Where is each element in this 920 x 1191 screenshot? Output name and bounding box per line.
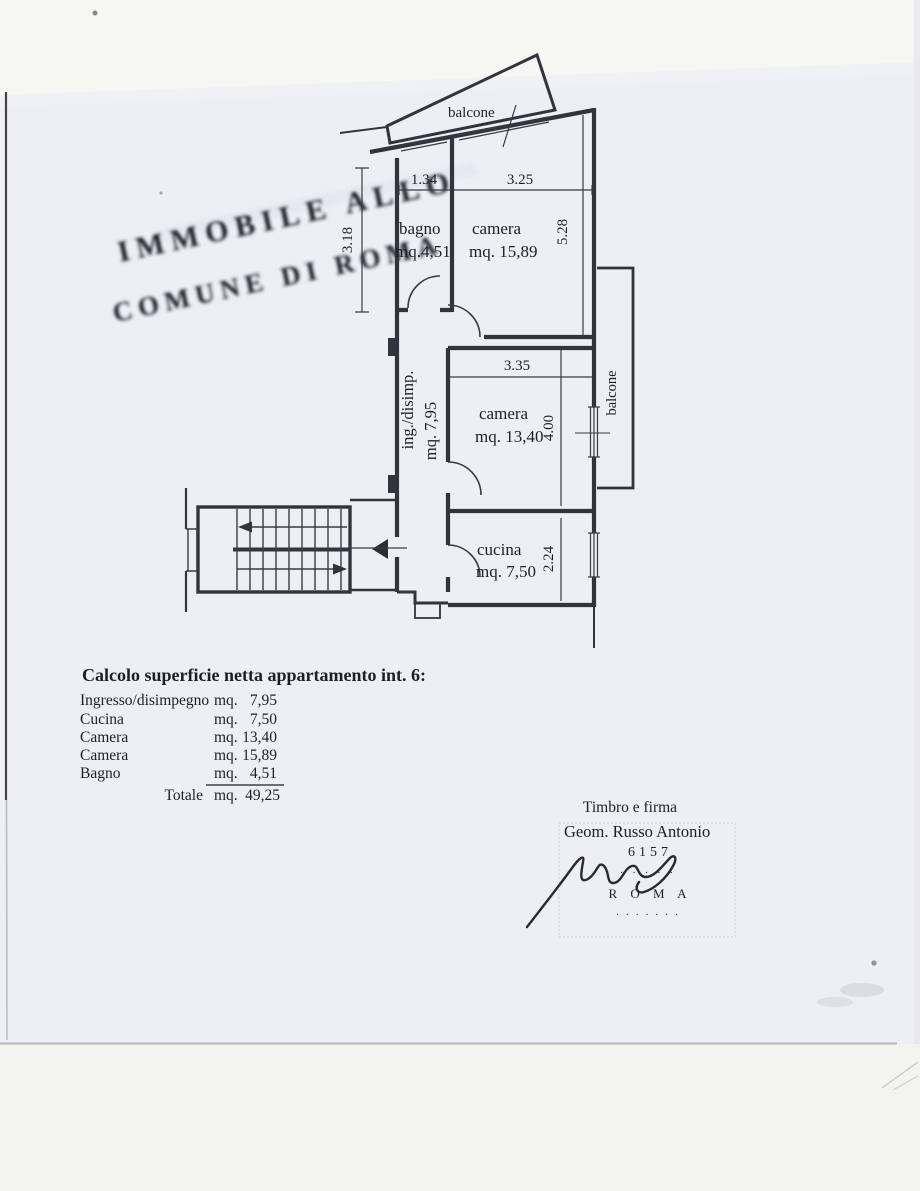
scan-speck-bottomright — [871, 960, 876, 965]
camera1-area: mq. 15,89 — [469, 242, 537, 261]
room-labels: bagno mq.4,51 camera mq. 15,89 camera mq… — [395, 219, 543, 581]
vestibule-walls — [350, 500, 397, 590]
camera1-label: camera — [472, 219, 522, 238]
scan-smudge-bottomright — [840, 983, 884, 997]
calc-row-value: 13,40 — [242, 729, 277, 746]
ingresso-label: ing./disimp. — [398, 371, 417, 450]
calc-rows: Ingresso/disimpegno mq. 7,95 Cucina mq. … — [80, 692, 277, 782]
wall-notch-1 — [388, 338, 397, 356]
calc-total-label: Totale — [164, 787, 203, 804]
calc-title: Calcolo superficie netta appartamento in… — [82, 665, 426, 685]
door-arcs — [408, 276, 481, 577]
stamp-line-1: 6157 — [628, 845, 672, 860]
balcony-right-label: balcone — [604, 370, 620, 415]
calc-row-bagno: Bagno mq. 4,51 — [80, 765, 277, 782]
window-lines-1 — [588, 407, 600, 457]
stamp-signature-block: Timbro e firma 6157 · · · · · R O M A · … — [527, 799, 735, 937]
corridor-bottom-step — [415, 603, 440, 618]
bagno-door-arc — [408, 276, 440, 308]
scan-smudge-bottomright-2 — [817, 997, 853, 1007]
calc-row-label: Ingresso/disimpegno — [80, 692, 209, 709]
bagno-area: mq.4,51 — [395, 242, 451, 261]
camera2-door-arc — [448, 462, 481, 495]
calc-row-unit: mq. — [214, 765, 238, 782]
calc-row-camera-2: Camera mq. 15,89 — [80, 747, 277, 764]
calc-row-unit: mq. — [214, 711, 238, 728]
staircase — [186, 488, 350, 612]
stamp-line-4: · · · · · · · — [616, 910, 680, 921]
stair-arrow-up-head — [238, 522, 252, 533]
scanner-band-bottom — [0, 1044, 920, 1191]
calc-row-value: 7,95 — [250, 692, 277, 709]
scan-artifacts — [0, 0, 920, 1191]
dim-bagno-width: 1.34 — [411, 172, 438, 188]
calc-row-value: 15,89 — [242, 747, 277, 764]
stair-arrow-down-head — [333, 564, 347, 575]
scan-speck — [159, 191, 162, 194]
wall-notch-2 — [388, 475, 397, 493]
stamp-caption: Timbro e firma — [583, 799, 677, 816]
corridor-bottom-wall — [397, 592, 448, 603]
dim-camera2-width: 3.35 — [504, 358, 530, 374]
cucina-area: mq. 7,50 — [476, 562, 536, 581]
calc-row-unit: mq. — [214, 729, 238, 746]
camera2-area: mq. 13,40 — [475, 427, 543, 446]
window-right-wall-1 — [588, 407, 600, 457]
calc-total-value: 49,25 — [245, 787, 280, 804]
cucina-label: cucina — [477, 540, 522, 559]
calc-row-ingresso: Ingresso/disimpegno mq. 7,95 — [80, 692, 277, 709]
ingresso-area: mq. 7,95 — [421, 402, 440, 460]
window-lines-2 — [588, 533, 600, 577]
dim-camera1-width: 3.25 — [507, 172, 533, 188]
calc-row-camera-1: Camera mq. 13,40 — [80, 729, 277, 746]
calc-row-cucina: Cucina mq. 7,50 — [80, 711, 277, 728]
dim-camera1-height: 5.28 — [555, 219, 571, 245]
calc-total-unit: mq. — [214, 787, 238, 804]
bagno-label: bagno — [399, 219, 441, 238]
scanned-floorplan-page: IMMOBILE ALLO COMUNE DI ROMA balcone ba — [0, 0, 920, 1191]
calc-total-row: Totale mq. 49,25 — [164, 787, 280, 804]
camera2-label: camera — [479, 404, 529, 423]
stamp-faint-text: 6157 · · · · · R O M A · · · · · · · — [608, 845, 691, 921]
calc-row-unit: mq. — [214, 747, 238, 764]
calc-row-unit: mq. — [214, 692, 238, 709]
calc-row-label: Bagno — [80, 765, 121, 782]
calc-row-label: Cucina — [80, 711, 124, 728]
floorplan-drawing: IMMOBILE ALLO COMUNE DI ROMA balcone ba — [0, 0, 920, 1191]
calc-row-label: Camera — [80, 729, 128, 746]
entrance-door-symbol — [372, 539, 388, 559]
calc-row-value: 7,50 — [250, 711, 277, 728]
floorplan: balcone balcone — [186, 55, 633, 648]
calc-row-label: Camera — [80, 747, 128, 764]
calc-row-value: 4,51 — [250, 765, 277, 782]
area-calculation: Calcolo superficie netta appartamento in… — [80, 665, 426, 804]
balcony-top-label: balcone — [448, 105, 495, 121]
stairwell-left-window — [186, 529, 199, 571]
scan-left-edge-line-faded — [7, 800, 8, 1040]
window-right-wall-2 — [588, 533, 600, 577]
scan-speck-topleft — [93, 11, 98, 16]
surveyor-name: Geom. Russo Antonio — [564, 822, 710, 841]
neighbor-wall-stub — [340, 127, 387, 133]
scan-right-edge-shade — [914, 0, 920, 1044]
dim-cucina-height: 2.24 — [541, 545, 557, 572]
dim-bagno-height: 3.18 — [340, 227, 356, 253]
